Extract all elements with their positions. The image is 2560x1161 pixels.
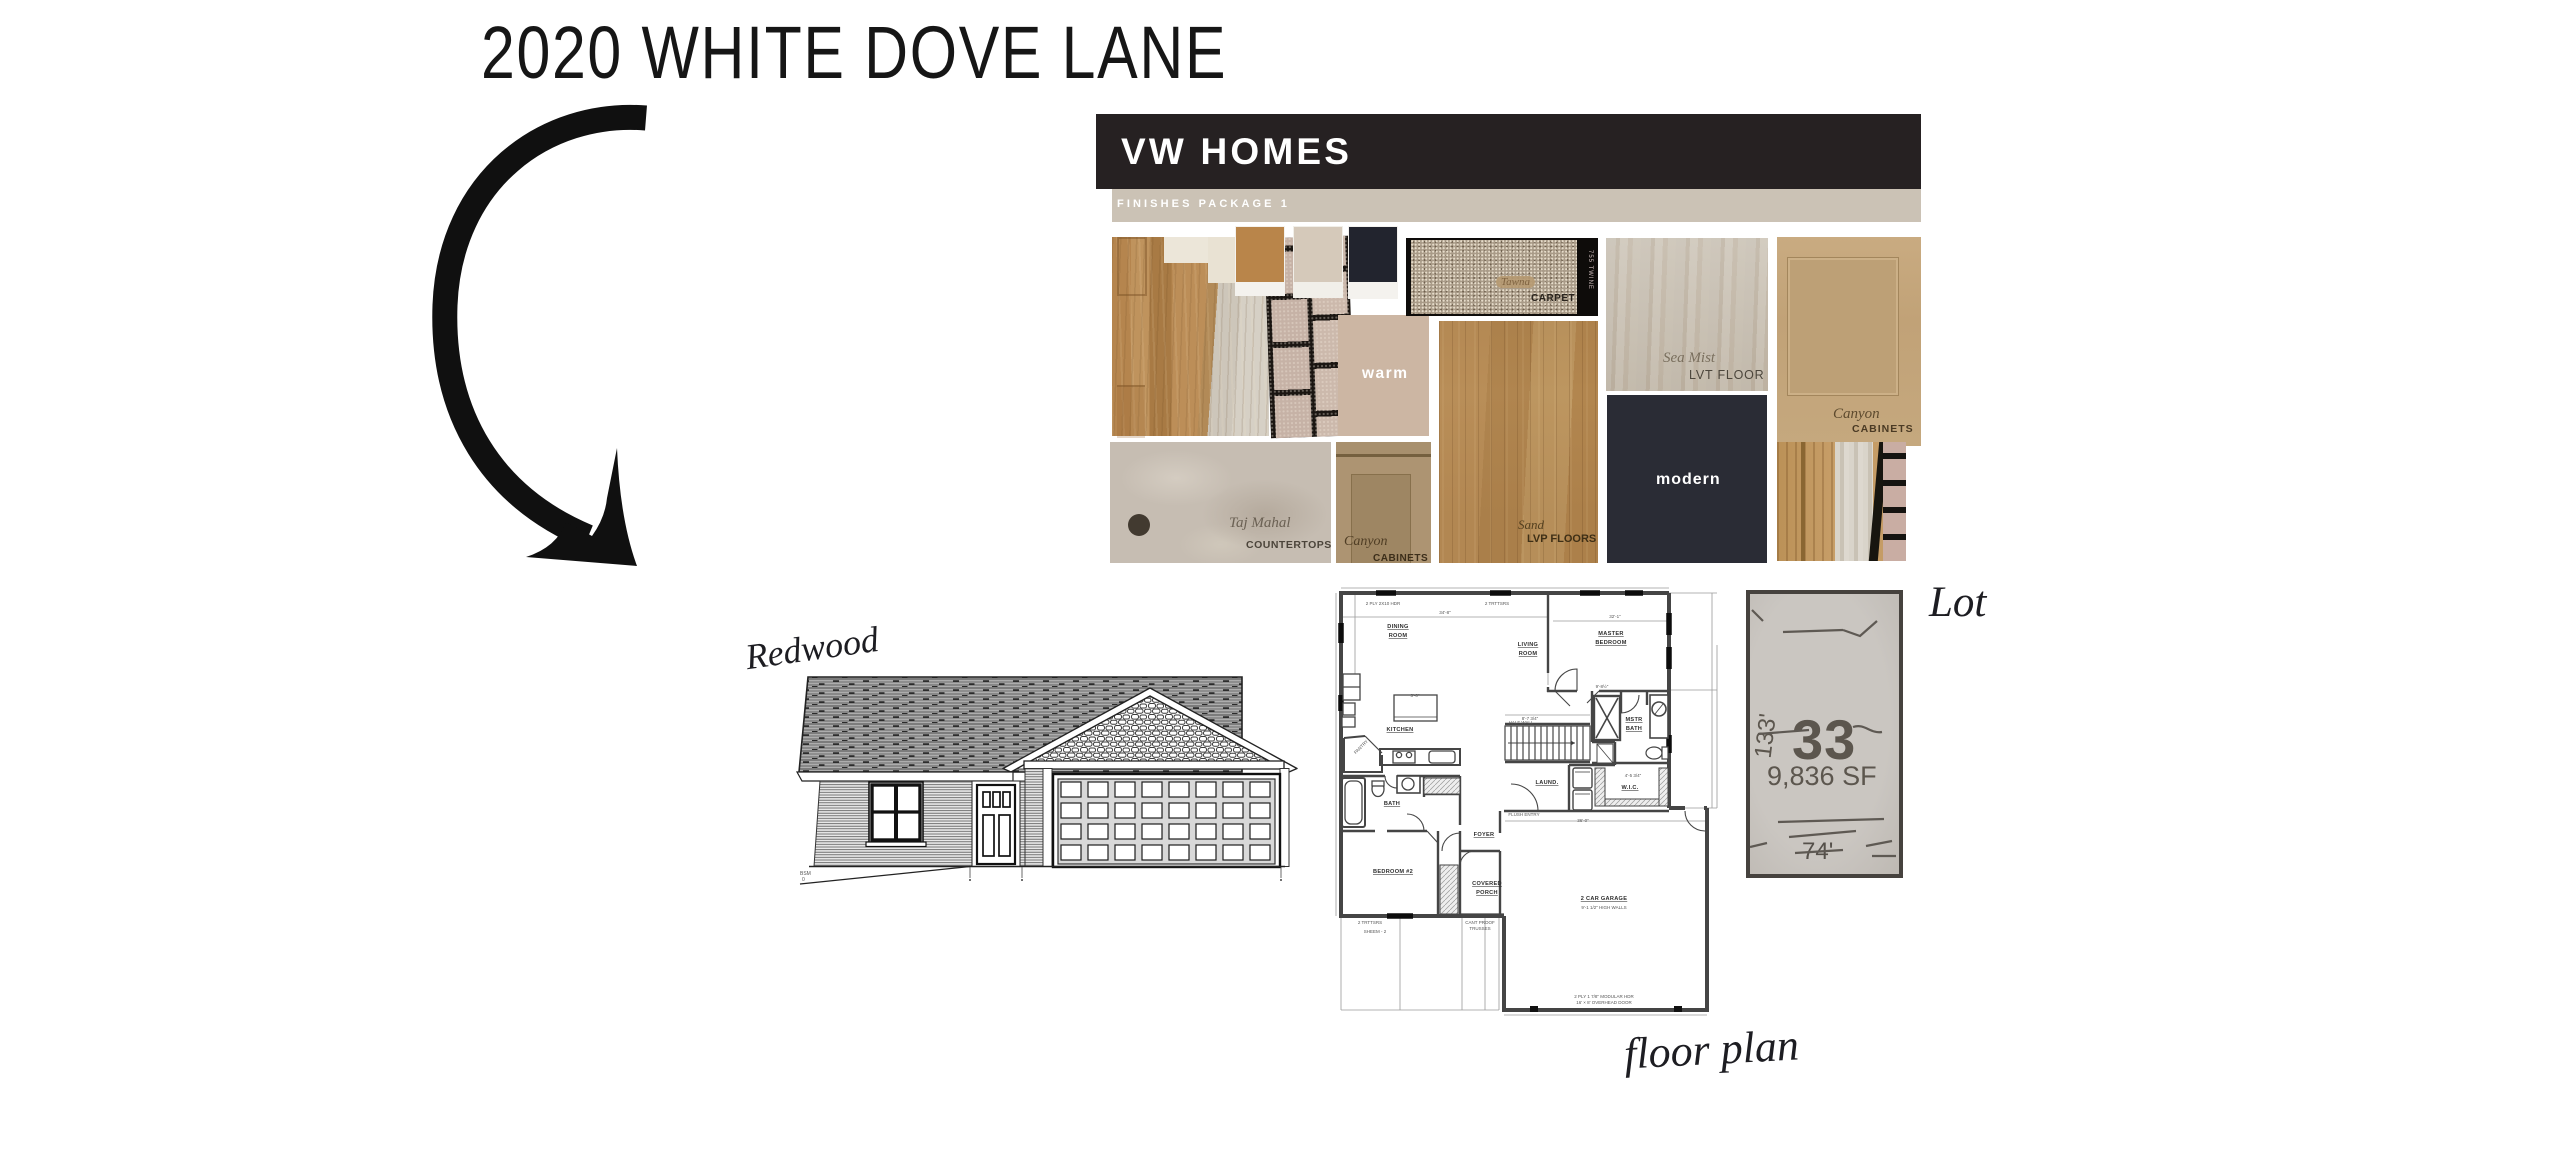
svg-text:LAUND.: LAUND. bbox=[1536, 780, 1559, 786]
svg-text:MSTR: MSTR bbox=[1625, 717, 1642, 723]
svg-text:32'-1": 32'-1" bbox=[1609, 614, 1621, 619]
svg-text:PANTRY: PANTRY bbox=[1353, 739, 1369, 755]
svg-text:BEDROOM: BEDROOM bbox=[1595, 640, 1626, 646]
svg-text:FLUSH ENTRY: FLUSH ENTRY bbox=[1508, 812, 1539, 817]
svg-text:COVERED: COVERED bbox=[1472, 881, 1502, 887]
svg-text:2 TRTTSRS: 2 TRTTSRS bbox=[1358, 920, 1382, 925]
svg-text:DINING: DINING bbox=[1387, 624, 1408, 630]
svg-text:BEDROOM #2: BEDROOM #2 bbox=[1373, 869, 1413, 875]
svg-text:MASTER: MASTER bbox=[1598, 631, 1623, 637]
svg-text:2 PLY 1 7/8" MODULAR HDR: 2 PLY 1 7/8" MODULAR HDR bbox=[1574, 994, 1634, 999]
svg-text:0: 0 bbox=[802, 877, 805, 883]
svg-text:FOYER: FOYER bbox=[1474, 832, 1495, 838]
svg-text:SHEEM - 2: SHEEM - 2 bbox=[1364, 929, 1387, 934]
svg-text:BATH: BATH bbox=[1626, 726, 1642, 732]
svg-text:9'-8½": 9'-8½" bbox=[1596, 683, 1609, 689]
svg-text:9'-1 1/2" HIGH WALLS: 9'-1 1/2" HIGH WALLS bbox=[1581, 905, 1626, 910]
svg-text:2 CAR GARAGE: 2 CAR GARAGE bbox=[1581, 896, 1628, 902]
svg-text:KITCHEN: KITCHEN bbox=[1387, 727, 1414, 733]
svg-text:LIVING: LIVING bbox=[1518, 642, 1538, 648]
svg-text:2 TRTTSRS: 2 TRTTSRS bbox=[1485, 601, 1509, 606]
svg-text:34'-8": 34'-8" bbox=[1439, 610, 1451, 615]
svg-text:PORCH: PORCH bbox=[1476, 890, 1498, 896]
svg-text:W.I.C.: W.I.C. bbox=[1621, 785, 1638, 791]
svg-text:TRUSSES: TRUSSES bbox=[1469, 926, 1490, 931]
svg-text:2 PLY 2X10 HDR: 2 PLY 2X10 HDR bbox=[1366, 601, 1401, 606]
svg-text:16' × 8' OVERHEAD DOOR: 16' × 8' OVERHEAD DOOR bbox=[1576, 1000, 1632, 1005]
svg-text:36'-0": 36'-0" bbox=[1577, 818, 1589, 823]
svg-text:ROOM: ROOM bbox=[1389, 633, 1408, 639]
svg-text:3'-0": 3'-0" bbox=[1411, 693, 1420, 698]
svg-text:BATH: BATH bbox=[1384, 801, 1400, 807]
svg-text:CANT PROOF: CANT PROOF bbox=[1465, 920, 1495, 925]
svg-text:HALF WALL: HALF WALL bbox=[1509, 720, 1534, 725]
svg-text:ROOM: ROOM bbox=[1519, 651, 1538, 657]
svg-text:4'-5 3/4": 4'-5 3/4" bbox=[1625, 773, 1642, 778]
